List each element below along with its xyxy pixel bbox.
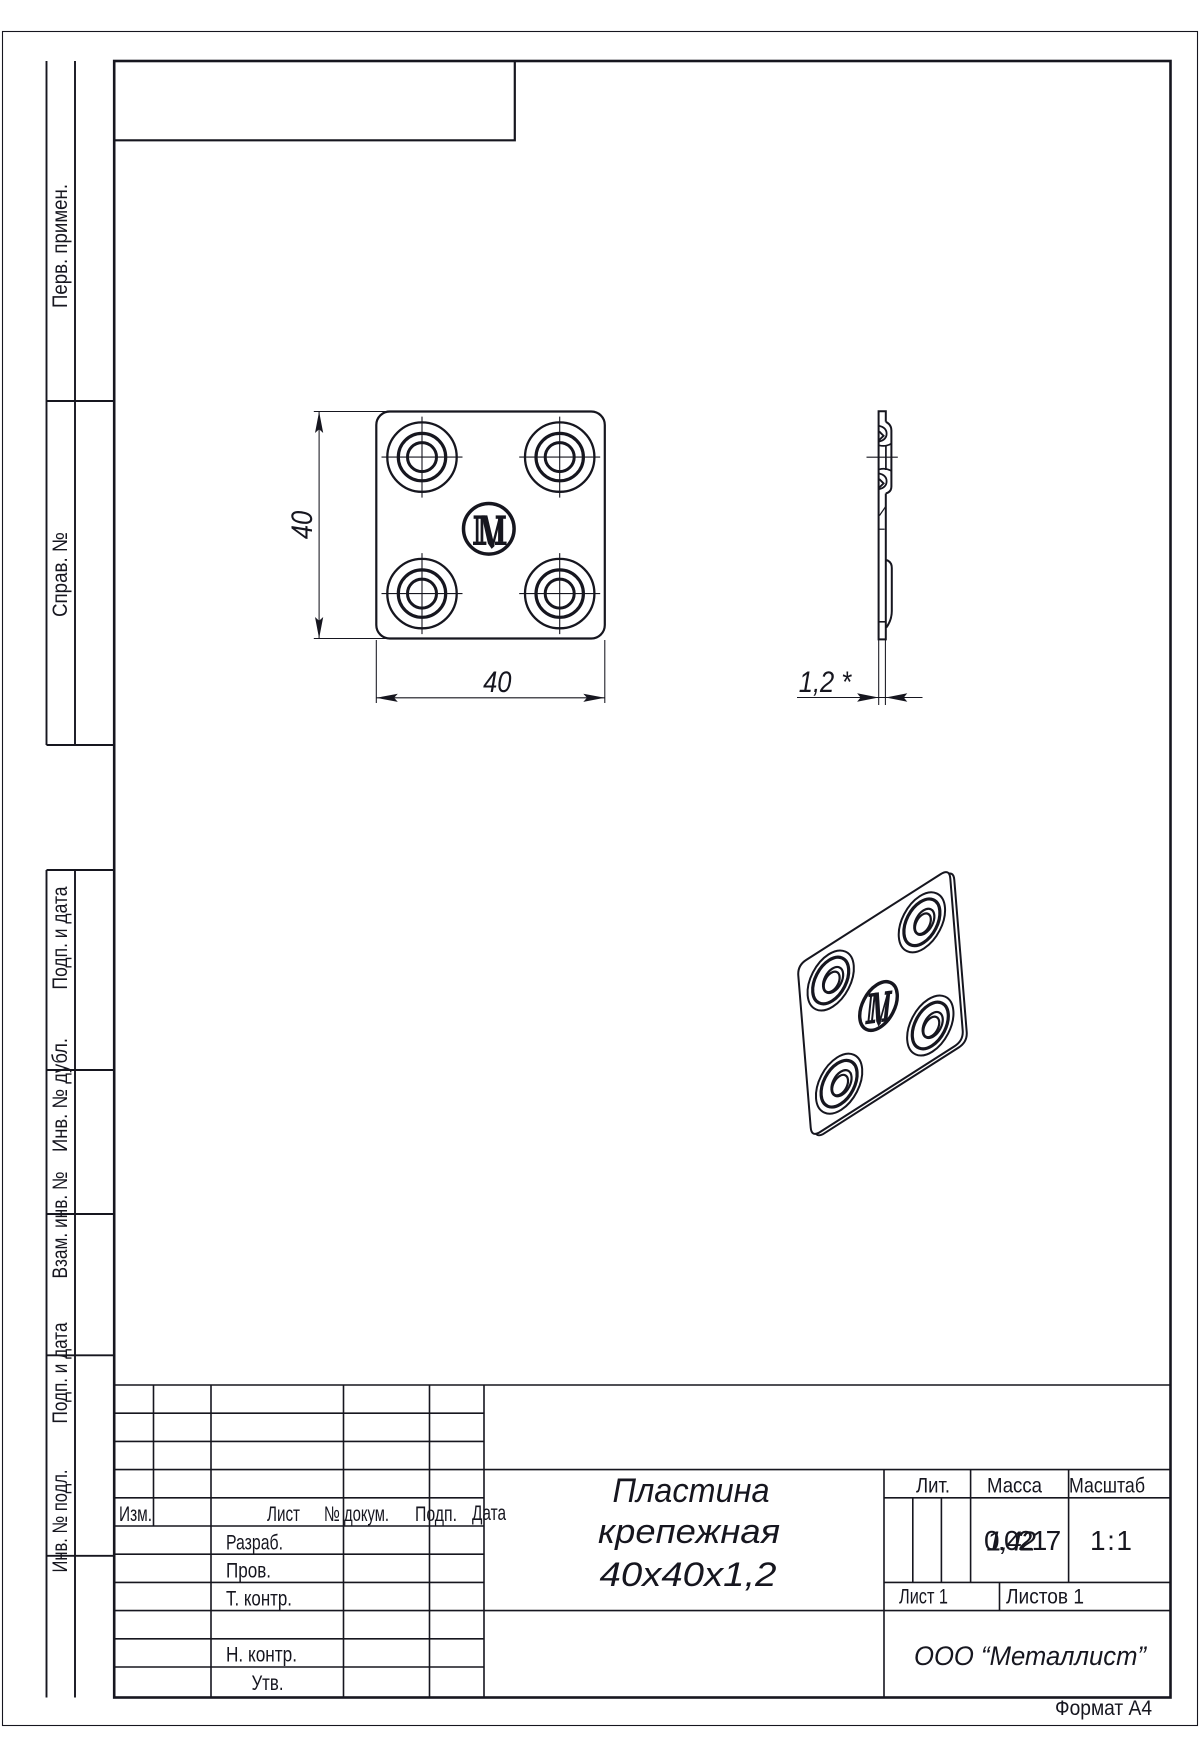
svg-text:Масштаб: Масштаб (1069, 1475, 1145, 1498)
svg-text:1,42: 1,42 (987, 1526, 1037, 1557)
svg-text:Инв. № дубл.: Инв. № дубл. (49, 1038, 72, 1152)
svg-text:Пров.: Пров. (226, 1560, 271, 1583)
svg-text:Дата: Дата (472, 1502, 506, 1525)
svg-text:крепежная: крепежная (598, 1513, 780, 1551)
svg-text:Подп.: Подп. (415, 1503, 457, 1526)
svg-text:Подп. и дата: Подп. и дата (49, 1322, 72, 1423)
svg-text:Инв. № подл.: Инв. № подл. (49, 1470, 72, 1573)
svg-text:40х40х1,2: 40х40х1,2 (600, 1556, 777, 1594)
svg-text:40: 40 (285, 510, 318, 539)
svg-text:Листов 1: Листов 1 (1006, 1586, 1084, 1609)
svg-text:40: 40 (483, 665, 512, 698)
svg-text:№ докум.: № докум. (324, 1503, 389, 1526)
svg-text:1:1: 1:1 (1090, 1525, 1133, 1556)
svg-text:Т. контр.: Т. контр. (226, 1588, 292, 1611)
svg-text:Разраб.: Разраб. (226, 1532, 283, 1555)
svg-text:Перв. примен.: Перв. примен. (49, 184, 72, 308)
svg-text:Подп. и дата: Подп. и дата (49, 886, 72, 989)
svg-text:Формат А4: Формат А4 (1055, 1697, 1152, 1720)
svg-text:Справ. №: Справ. № (49, 532, 72, 617)
svg-text:Изм.: Изм. (119, 1503, 152, 1526)
svg-text:Н. контр.: Н. контр. (226, 1644, 297, 1667)
svg-text:Лит.: Лит. (916, 1475, 950, 1498)
svg-text:Пластина: Пластина (613, 1472, 770, 1510)
svg-text:Лист: Лист (267, 1503, 300, 1526)
svg-text:Утв.: Утв. (252, 1672, 284, 1695)
svg-text:1,2 *: 1,2 * (799, 665, 853, 698)
svg-text:ООО “Металлист”: ООО “Металлист” (914, 1641, 1147, 1671)
svg-text:Лист 1: Лист 1 (899, 1586, 948, 1609)
svg-text:Взам. инв. №: Взам. инв. № (49, 1172, 72, 1279)
svg-text:Масса: Масса (987, 1475, 1042, 1498)
